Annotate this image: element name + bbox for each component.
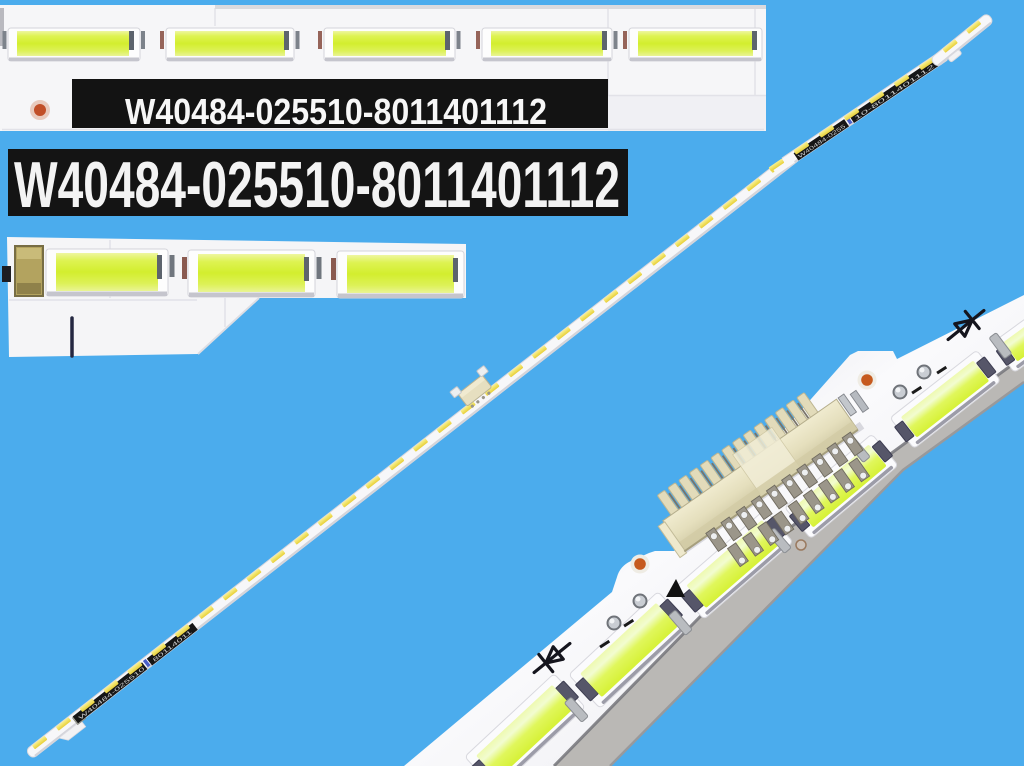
svg-text:W40484-025510-8011401112: W40484-025510-8011401112 [14, 148, 620, 221]
svg-text:W40484-025510-8011401112: W40484-025510-8011401112 [125, 91, 547, 132]
